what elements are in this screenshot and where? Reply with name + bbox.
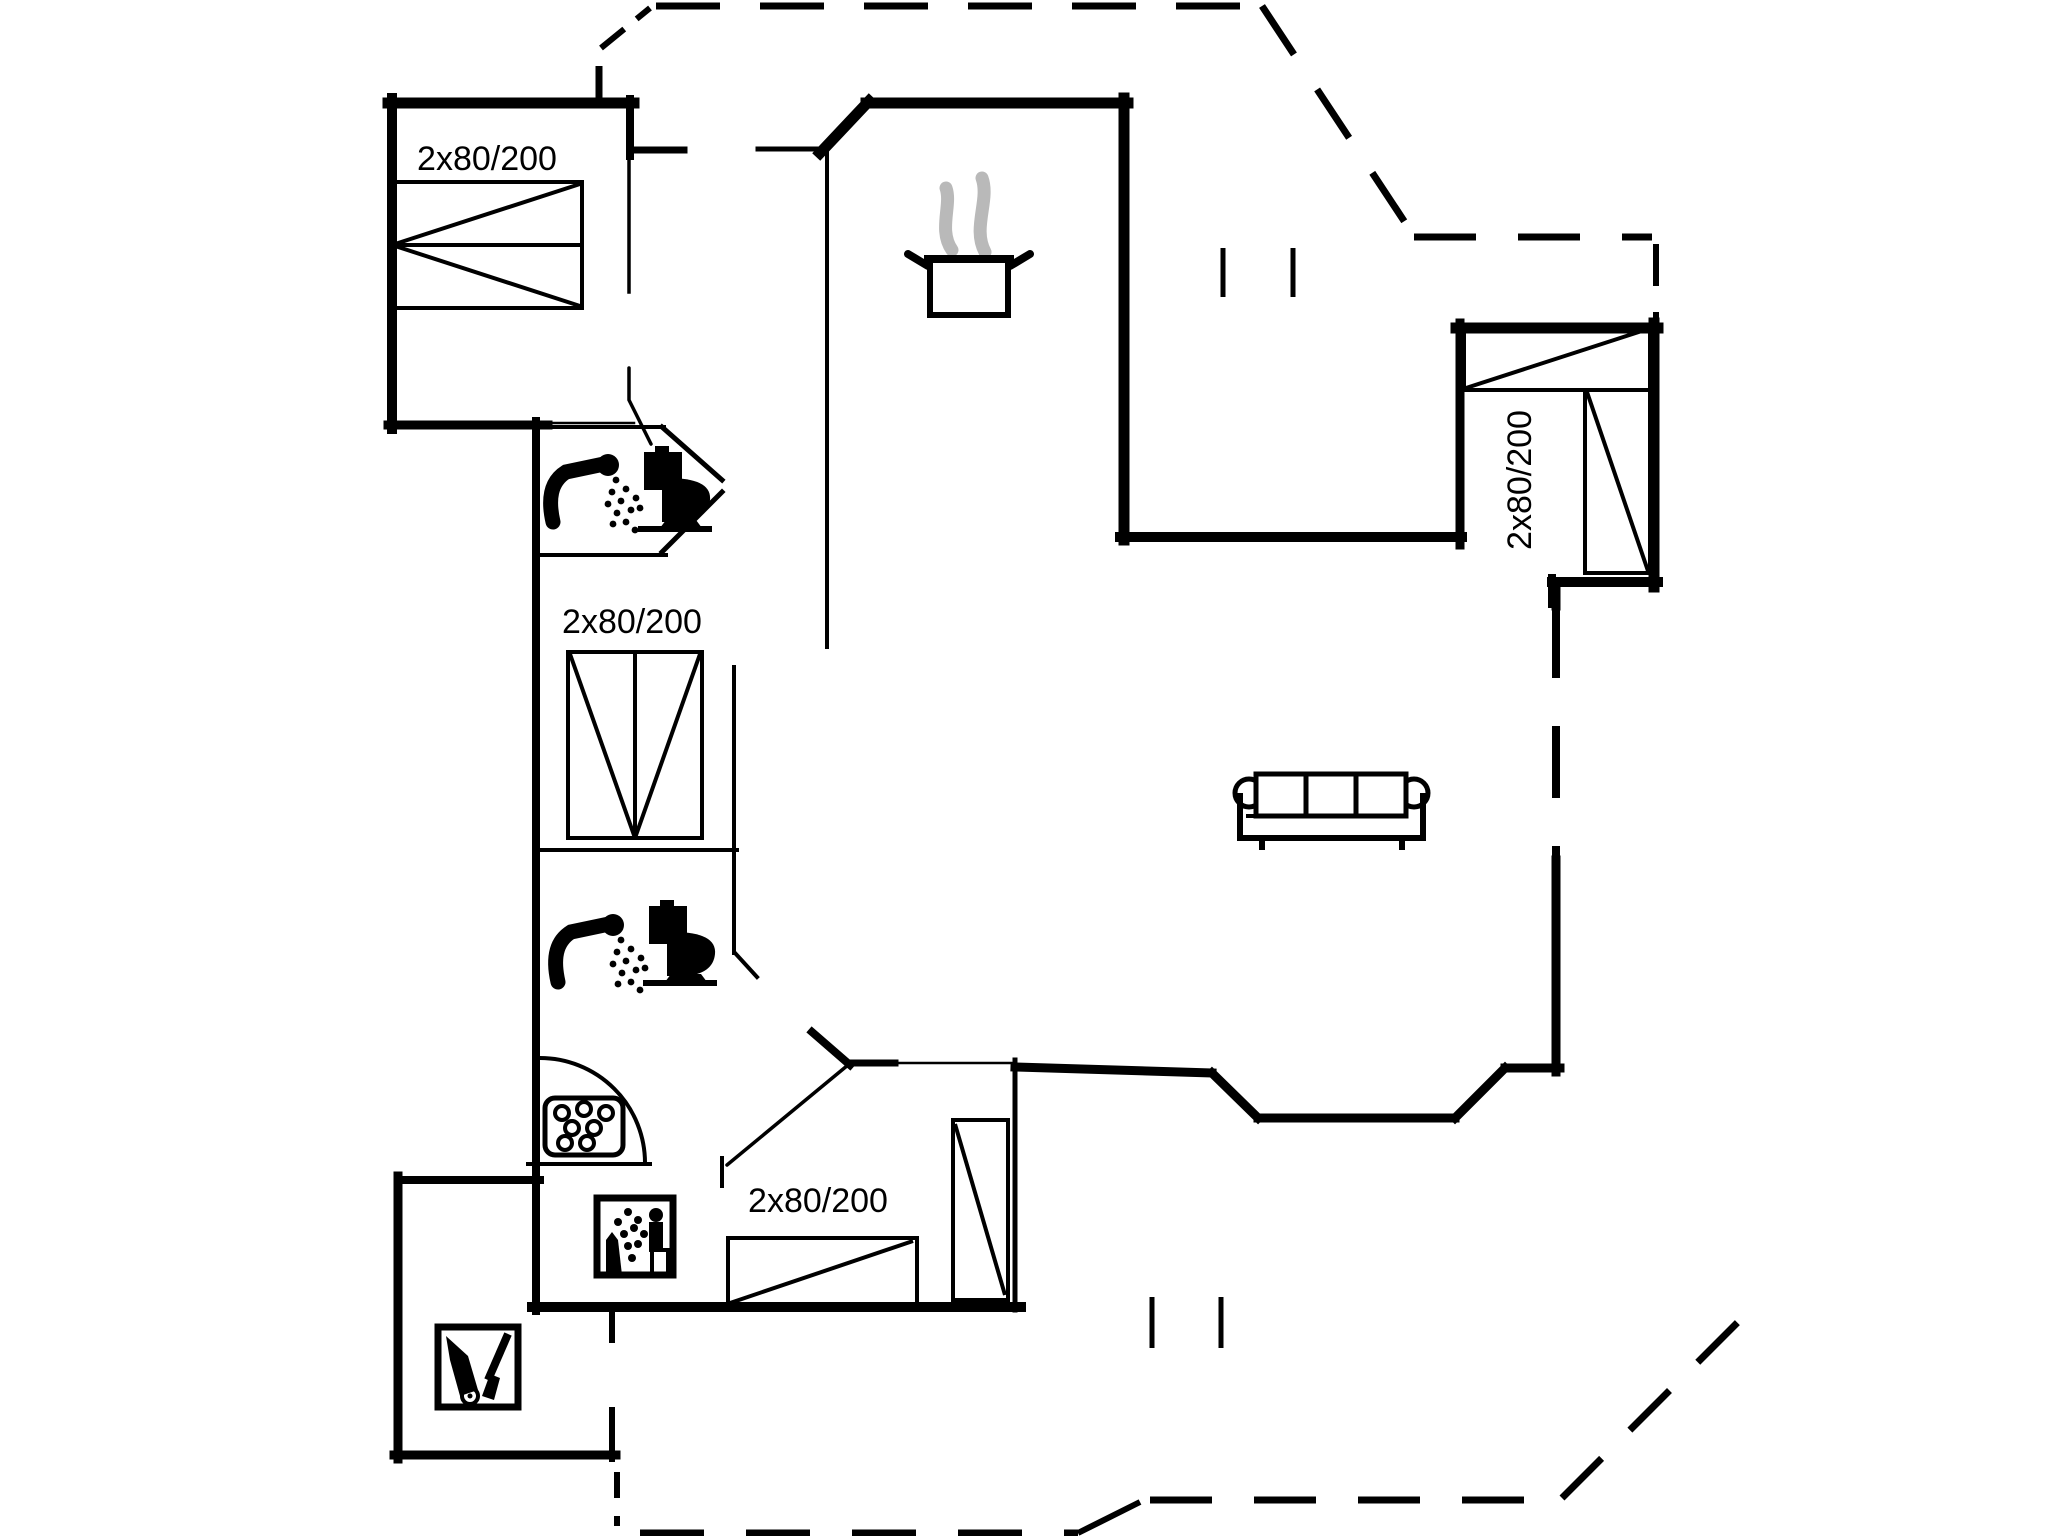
walls (388, 98, 1658, 1459)
shower-icon (551, 454, 644, 533)
shower-icon (556, 914, 649, 993)
cleaning-equipment-icon (438, 1327, 518, 1407)
door-swing-symbol (727, 1065, 848, 1165)
sofa-icon (1235, 774, 1428, 850)
washing-machine-icon (597, 1198, 673, 1275)
shower-tray-icon (545, 1098, 623, 1155)
double-bed-symbol (392, 182, 582, 308)
bed-size-label: 2x80/200 (748, 1182, 888, 1220)
toilet-icon (643, 900, 717, 986)
bathroom-1-icons (551, 446, 712, 533)
door-swing-symbol (629, 368, 651, 444)
double-bed-symbol (1464, 327, 1650, 573)
bathroom-2-icons (556, 900, 717, 993)
bed-size-label: 2x80/200 (1501, 410, 1539, 550)
bed-size-label: 2x80/200 (417, 140, 557, 178)
double-bed-symbol (568, 652, 702, 838)
floor-plan: 2x80/200 2x80/200 2x80/200 2x80/200 (0, 0, 2048, 1536)
cooking-pot-steam-icon (908, 178, 1030, 315)
bed-size-label: 2x80/200 (562, 603, 702, 641)
